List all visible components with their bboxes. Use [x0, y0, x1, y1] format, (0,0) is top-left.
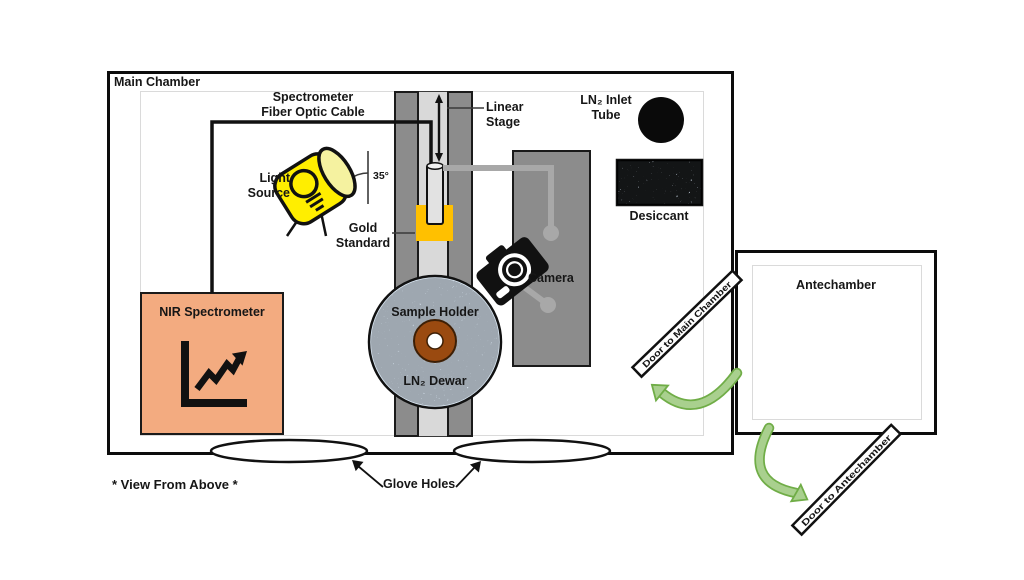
door-swing-arrow-ante — [760, 428, 808, 501]
camera-label: Camera — [528, 271, 574, 286]
light-angle-label: 35° — [373, 170, 389, 182]
main-chamber-label: Main Chamber — [114, 75, 200, 90]
camera-arm-end-dot — [540, 297, 556, 313]
glove-holes-label: Glove Holes — [383, 477, 455, 492]
glove-hole-left — [211, 440, 367, 462]
linear-stage-label: Linear Stage — [486, 100, 524, 130]
door-swing-arrow-main — [652, 373, 737, 405]
probe-cylinder — [427, 165, 443, 224]
door-to-antechamber-label: Door to Antechamber — [799, 432, 894, 528]
door-to-antechamber: Door to Antechamber — [792, 425, 900, 535]
glove-hole-right — [454, 440, 610, 462]
probe-cylinder-top — [427, 163, 443, 169]
door-to-main-chamber-label: Door to Main Chamber — [640, 279, 734, 370]
light-source-label: Light Source — [228, 171, 290, 201]
sample-holder-hole — [427, 333, 443, 349]
camera-cable-end-dot — [543, 225, 559, 241]
desiccant-label: Desiccant — [609, 209, 709, 224]
view-from-above-note: * View From Above * — [112, 477, 238, 492]
spectrum-chart-icon — [185, 341, 247, 403]
antechamber-label: Antechamber — [771, 278, 901, 293]
ln2-inlet-tube-circle — [638, 97, 684, 143]
stage-motion-arrow-down — [435, 153, 443, 162]
camera-cable-line — [443, 168, 551, 228]
ln2-inlet-tube-label: LN₂ Inlet Tube — [570, 93, 642, 123]
fiber-optic-cable-label: Spectrometer Fiber Optic Cable — [233, 90, 393, 120]
glove-pointer-left — [358, 466, 383, 487]
ln2-dewar-label: LN₂ Dewar — [385, 374, 485, 389]
glove-pointer-right — [456, 468, 474, 487]
door-to-main-chamber: Door to Main Chamber — [632, 271, 741, 377]
gold-standard-label: Gold Standard — [332, 221, 394, 251]
desiccant-texture — [617, 160, 702, 205]
sample-holder-label: Sample Holder — [375, 305, 495, 320]
stage-motion-arrow-up — [435, 94, 443, 103]
schematic-canvas: NIR Spectrometer — [0, 0, 1024, 580]
